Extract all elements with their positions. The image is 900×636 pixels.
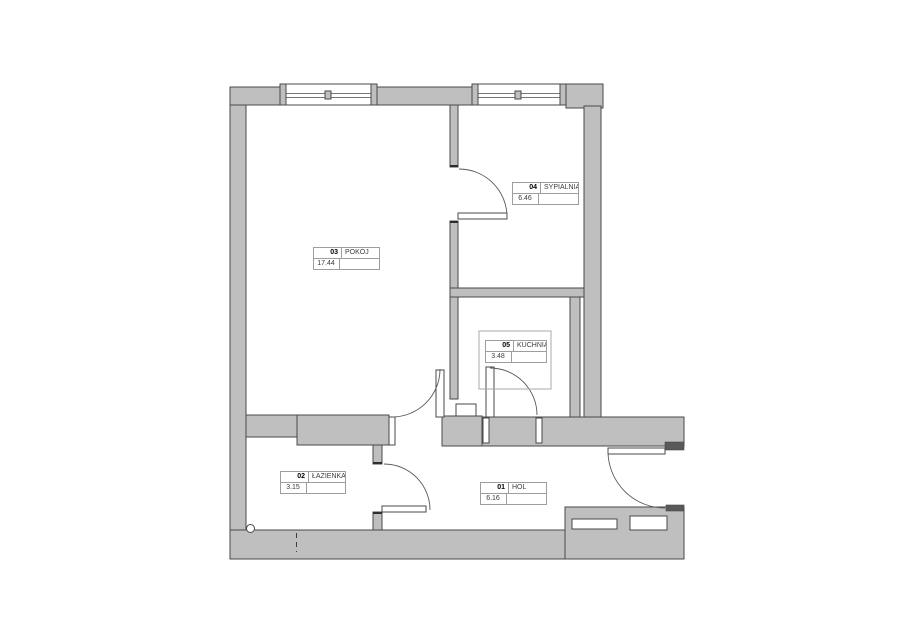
wall-pokoj-sypialnia-upper [450,105,458,167]
floor-plan-drawing [0,0,900,636]
room-area-spacer [307,483,345,493]
room-area: 3.15 [281,483,307,493]
room-area-spacer [512,352,546,362]
jamb-kuchnia-door-right [536,418,542,443]
room-name: SYPIALNIA [541,183,578,193]
bathroom-pipe-symbol [247,525,255,533]
window-2-cap-left [472,84,478,105]
door-leaf-kuchnia [486,367,494,417]
room-label-row: 02 ŁAZIENKA [281,472,345,482]
wall-top-left [230,87,280,105]
room-label-sypialnia: 04 SYPIALNIA 6.46 [512,182,579,205]
niche-right [630,516,667,530]
wall-left [230,87,246,559]
room-label-row: 17.44 [314,258,379,269]
duct-box [456,404,476,416]
wall-top-right-corner [566,84,603,108]
room-number: 04 [513,183,541,193]
room-area: 3.48 [486,352,512,362]
room-number: 01 [481,483,509,493]
wall-pokoj-bottom-thin [246,415,297,437]
room-label-row: 3.15 [281,482,345,493]
door-leaf-pokoj [436,370,444,417]
window-1-cap-right [371,84,377,105]
room-name: HOL [509,483,546,493]
door-arc-sypialnia [459,169,507,217]
wall-hall-top-band [482,417,684,446]
wall-central-pier [442,416,482,446]
room-name: POKÓJ [342,248,379,258]
door-leaf-lazienka [382,506,426,512]
room-label-row: 03 POKÓJ [314,248,379,258]
room-label-row: 6.46 [513,193,578,204]
door-arc-pokoj [392,369,440,417]
room-area-spacer [340,259,379,269]
door-leaf-entrance [608,448,665,454]
window-2-cap-right [560,84,566,105]
wall-bathroom-stub-top [373,445,382,464]
door-leaf-sypialnia [458,213,507,219]
entrance-threshold-bottom [666,505,684,511]
wall-top-pier [377,87,472,105]
wall-sypialnia-kuchnia [450,288,584,297]
wall-pokoj-bottom-thick [297,415,389,445]
entrance-threshold-top [665,442,684,450]
niche-left [572,519,617,529]
room-area-spacer [507,494,546,504]
wall-pokoj-sypialnia-lower [450,221,458,288]
room-label-pokoj: 03 POKÓJ 17.44 [313,247,380,270]
wall-right [584,106,601,417]
room-label-row: 05 KUCHNIA [486,341,546,351]
door-arc-entrance [608,451,665,508]
room-label-row: 6.16 [481,493,546,504]
wall-pokoj-kuchnia [450,297,458,399]
room-number: 05 [486,341,514,351]
room-label-row: 01 HOL [481,483,546,493]
door-arc-kuchnia [490,368,537,415]
room-area: 17.44 [314,259,340,269]
room-number: 03 [314,248,342,258]
window-1-cap-left [280,84,286,105]
room-area-spacer [539,194,578,204]
room-label-row: 3.48 [486,351,546,362]
room-number: 02 [281,472,309,482]
window-2-mullion [515,91,521,99]
room-name: KUCHNIA [514,341,546,351]
room-area: 6.16 [481,494,507,504]
floor-plan: 01 HOL 6.16 02 ŁAZIENKA 3.15 03 POKÓJ 17… [0,0,900,636]
room-label-kuchnia: 05 KUCHNIA 3.48 [485,340,547,363]
door-arc-lazienka [384,464,430,510]
jamb-kuchnia-door-left [483,418,489,443]
wall-kuchnia-shaft-strip [570,297,580,417]
wall-bathroom-stub-bottom [373,512,382,530]
room-label-lazienka: 02 ŁAZIENKA 3.15 [280,471,346,494]
room-label-hol: 01 HOL 6.16 [480,482,547,505]
room-label-row: 04 SYPIALNIA [513,183,578,193]
window-1-mullion [325,91,331,99]
room-name: ŁAZIENKA [309,472,345,482]
wall-bottom-raised-block [565,507,684,559]
jamb-pokoj-door [389,417,395,445]
room-area: 6.46 [513,194,539,204]
